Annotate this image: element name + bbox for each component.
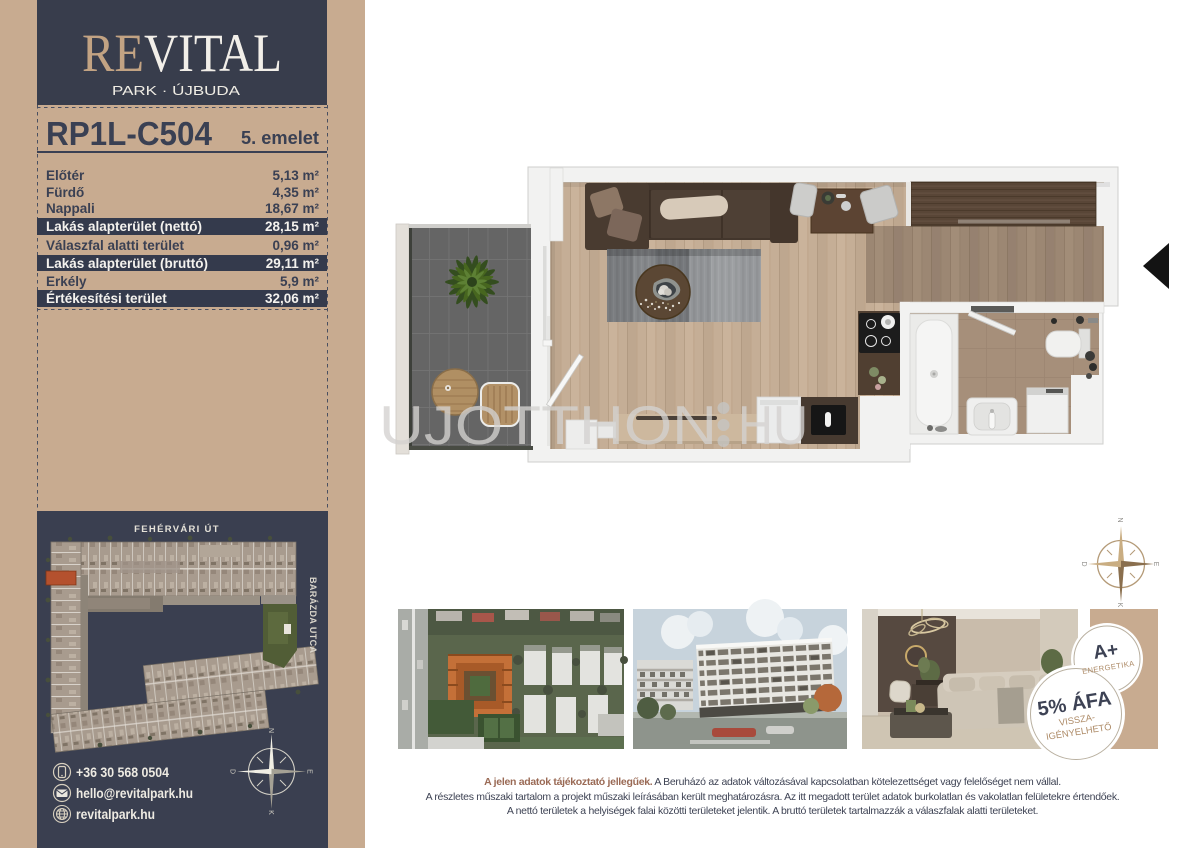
svg-text:5. emelet: 5. emelet xyxy=(241,127,319,148)
svg-text:K: K xyxy=(1116,603,1123,608)
svg-text:D: D xyxy=(229,769,236,774)
svg-text:+36 30 568 0504: +36 30 568 0504 xyxy=(76,764,169,780)
svg-text:UJOTTHON: UJOTTHON xyxy=(379,394,717,456)
svg-text:K: K xyxy=(267,810,274,815)
svg-text:revitalpark.hu: revitalpark.hu xyxy=(76,806,155,822)
svg-text:RP1L-C504: RP1L-C504 xyxy=(46,116,212,150)
svg-text:N: N xyxy=(1116,517,1123,522)
svg-text:hello@revitalpark.hu: hello@revitalpark.hu xyxy=(76,785,193,801)
svg-text:A+: A+ xyxy=(1092,639,1120,664)
svg-text:E: E xyxy=(306,769,313,774)
svg-text:VITAL: VITAL xyxy=(144,23,282,83)
svg-text:RE: RE xyxy=(82,23,144,83)
svg-text:PARK · ÚJBUDA: PARK · ÚJBUDA xyxy=(112,83,241,98)
svg-text:E: E xyxy=(1152,562,1159,567)
svg-text:D: D xyxy=(1080,561,1087,566)
svg-text:N: N xyxy=(267,728,274,733)
svg-text:HU: HU xyxy=(738,394,808,456)
